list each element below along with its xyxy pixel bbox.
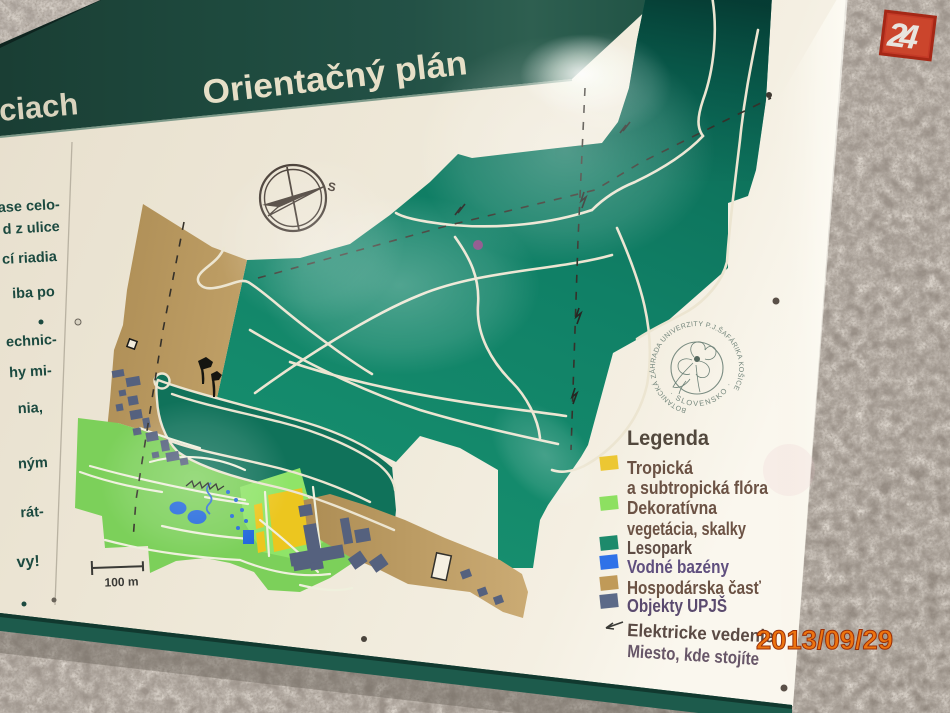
svg-text:nia,: nia,	[17, 400, 43, 417]
svg-text:vegetácia, skalky: vegetácia, skalky	[627, 519, 746, 539]
svg-text:vy!: vy!	[16, 553, 40, 571]
svg-text:Tropická: Tropická	[627, 458, 694, 478]
svg-text:100 m: 100 m	[104, 574, 138, 589]
svg-text:rát-: rát-	[20, 504, 44, 521]
svg-text:Lesopark: Lesopark	[627, 538, 693, 558]
svg-text:Hospodárska časť: Hospodárska časť	[627, 578, 761, 598]
svg-text:ase celo-: ase celo-	[0, 197, 60, 216]
svg-text:hy mi-: hy mi-	[9, 363, 53, 381]
svg-text:2013/09/29: 2013/09/29	[756, 625, 893, 655]
svg-text:echnic-: echnic-	[6, 332, 58, 351]
svg-text:Vodné bazény: Vodné bazény	[627, 557, 729, 577]
svg-text:iba po: iba po	[12, 284, 56, 302]
svg-text:ciach: ciach	[0, 86, 80, 128]
svg-text:a subtropická flóra: a subtropická flóra	[627, 478, 769, 498]
svg-text:d z ulice: d z ulice	[2, 219, 60, 238]
svg-text:ným: ným	[18, 455, 49, 473]
svg-text:Legenda: Legenda	[627, 426, 710, 450]
svg-text:cí riadia: cí riadia	[2, 249, 59, 268]
svg-text:Dekoratívna: Dekoratívna	[627, 498, 718, 518]
svg-text:Objekty UPJŠ: Objekty UPJŠ	[627, 595, 727, 616]
